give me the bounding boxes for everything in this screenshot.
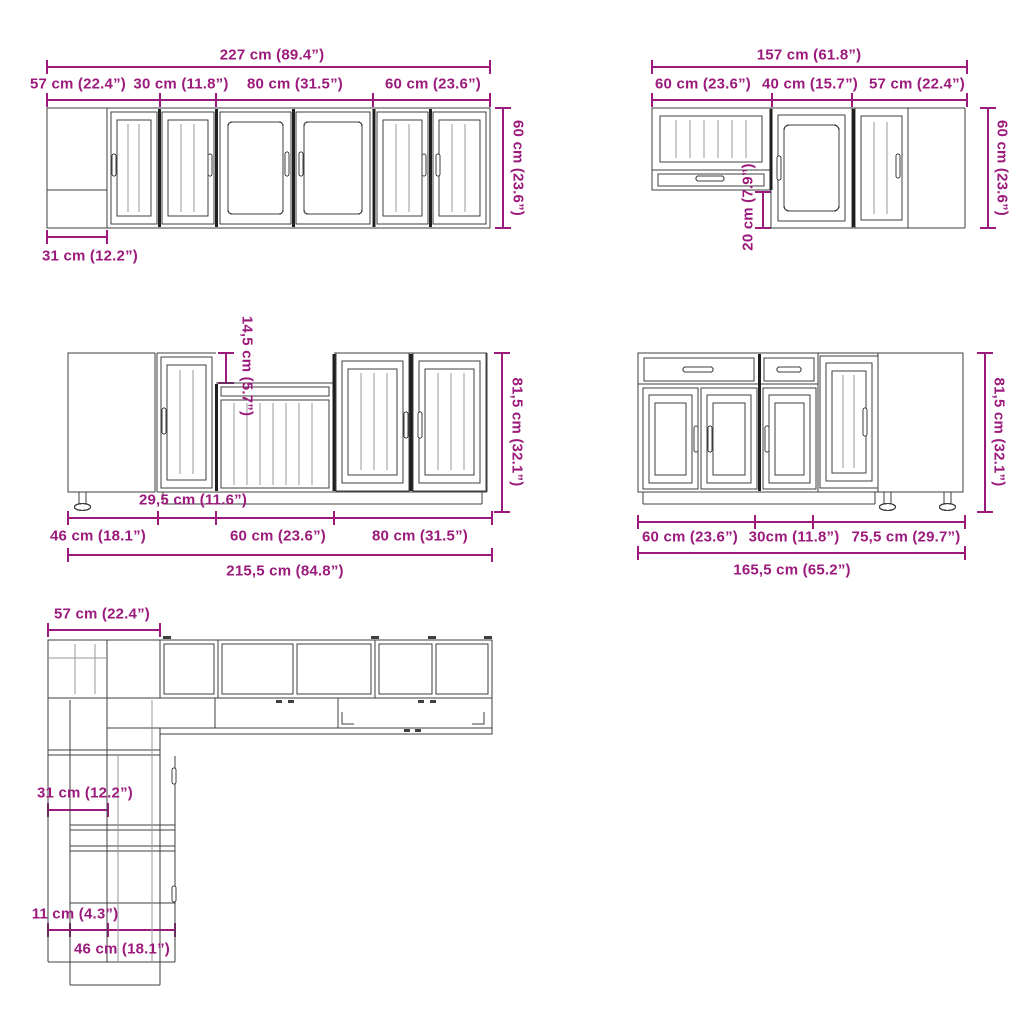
- wall-run-right-drawing: [652, 108, 965, 228]
- base-run-right-drawing: [638, 353, 963, 511]
- plan-view-hinge-marks: [163, 636, 492, 732]
- dim-wall-left-seg-3: 80 cm (31.5”): [247, 76, 343, 93]
- dim-wall-left-seg-2: 30 cm (11.8”): [133, 76, 228, 93]
- dim-plan-corner-width: 57 cm (22.4”): [54, 606, 150, 623]
- dim-plan-base-depth: 46 cm (18.1”): [74, 941, 170, 958]
- dim-base-left-seg-2: 60 cm (23.6”): [230, 528, 326, 545]
- dim-wall-right-seg-2: 40 cm (15.7”): [762, 76, 858, 93]
- wall-run-left-handles: [112, 152, 440, 176]
- dim-base-left-recess: 14,5 cm (5.7”): [239, 316, 256, 416]
- dim-wall-left-total: 227 cm (89.4”): [220, 47, 325, 64]
- dim-wall-left-depth: 31 cm (12.2”): [42, 248, 138, 265]
- dim-base-left-inner: 29,5 cm (11.6”): [139, 492, 247, 509]
- cabinet-dimension-diagram: 227 cm (89.4”) 57 cm (22.4”) 30 cm (11.8…: [0, 0, 1024, 1024]
- dim-base-left-seg-3: 80 cm (31.5”): [372, 528, 468, 545]
- dim-plan-cabinet-depth: 31 cm (12.2”): [37, 785, 133, 802]
- wall-run-left-separators: [160, 109, 431, 227]
- dim-plan-side-gap: 11 cm (4.3”): [32, 906, 119, 923]
- dim-wall-right-total: 157 cm (61.8”): [757, 47, 862, 64]
- dim-wall-right-seg-1: 60 cm (23.6”): [655, 76, 751, 93]
- dim-base-right-seg-1: 60 cm (23.6”): [642, 529, 738, 546]
- dim-base-right-total: 165,5 cm (65.2”): [733, 562, 850, 579]
- dim-wall-right-height: 60 cm (23.6”): [994, 120, 1011, 216]
- dim-wall-left-height: 60 cm (23.6”): [510, 120, 527, 216]
- dim-wall-left-seg-1: 57 cm (22.4”): [30, 76, 126, 93]
- base-run-left-handles: [162, 408, 422, 438]
- dim-base-right-seg-3: 75,5 cm (29.7”): [852, 529, 961, 546]
- dim-base-left-seg-1: 46 cm (18.1”): [50, 528, 146, 545]
- dim-base-right-seg-2: 30cm (11.8”): [749, 529, 840, 546]
- base-run-left-drawing: [68, 353, 487, 511]
- dim-wall-right-offset: 20 cm (7.9”): [740, 163, 757, 250]
- dim-base-right-height: 81,5 cm (32.1”): [991, 378, 1008, 487]
- plan-view-drawing: [48, 640, 492, 985]
- dim-wall-left-seg-4: 60 cm (23.6”): [385, 76, 481, 93]
- base-run-right-slats: [843, 375, 854, 468]
- wall-run-right-handles: [696, 154, 900, 181]
- dim-base-left-height: 81,5 cm (32.1”): [509, 378, 526, 487]
- dim-wall-right-seg-3: 57 cm (22.4”): [869, 76, 965, 93]
- dim-base-left-total: 215,5 cm (84.8”): [226, 563, 343, 580]
